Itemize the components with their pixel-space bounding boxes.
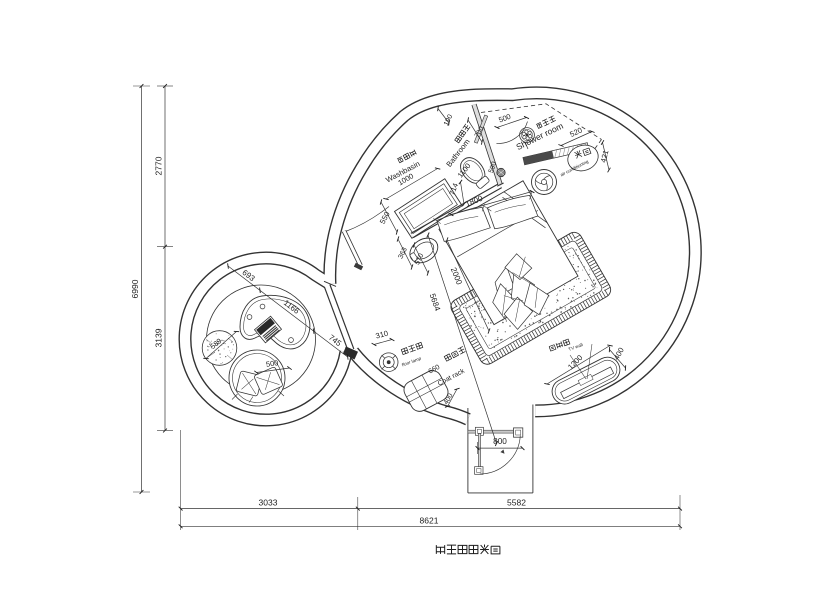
svg-text:8621: 8621 xyxy=(420,515,439,525)
svg-text:2770: 2770 xyxy=(154,156,164,175)
svg-text:5582: 5582 xyxy=(507,498,526,508)
svg-text:3033: 3033 xyxy=(259,498,278,508)
svg-text:500: 500 xyxy=(265,358,278,369)
svg-text:6990: 6990 xyxy=(130,279,140,298)
svg-text:800: 800 xyxy=(493,437,507,446)
svg-text:3139: 3139 xyxy=(154,328,164,347)
